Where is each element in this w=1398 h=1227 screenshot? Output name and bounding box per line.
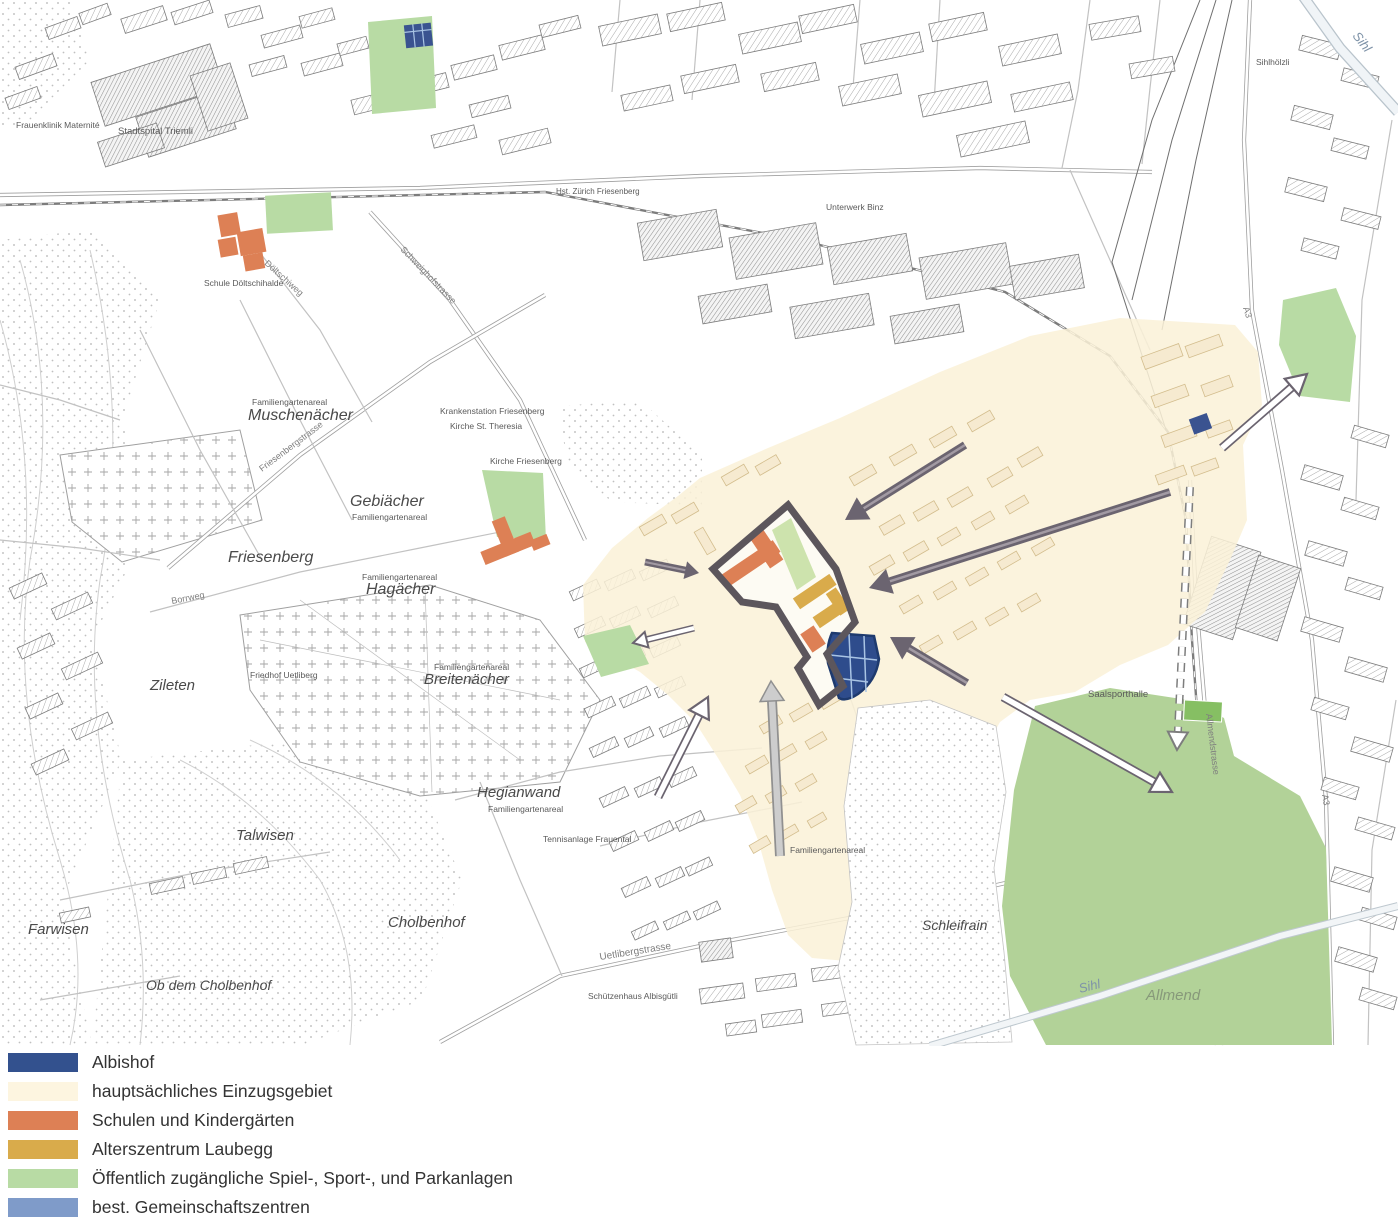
map-label: Zileten: [149, 677, 195, 694]
map-label: Friedhof Uetliberg: [250, 670, 318, 680]
legend-label-einzugsgebiet: hauptsächliches Einzugsgebiet: [92, 1081, 332, 1102]
map-label: Ob dem Cholbenhof: [146, 977, 273, 993]
city-map: MuschenächerGebiächerFriesenbergHagächer…: [0, 0, 1398, 1046]
map-label: Schleifrain: [922, 917, 988, 933]
legend: Albishof hauptsächliches Einzugsgebiet S…: [8, 1048, 708, 1222]
map-label: Hegianwand: [477, 784, 561, 801]
legend-swatch-einzugsgebiet: [8, 1082, 78, 1101]
legend-label-alterszentrum: Alterszentrum Laubegg: [92, 1139, 273, 1160]
map-label: Krankenstation Friesenberg: [440, 406, 545, 416]
map-label: Friesenberg: [228, 549, 313, 566]
map-label: Kirche St. Theresia: [450, 421, 522, 431]
map-label: Familiengartenareal: [434, 662, 509, 672]
legend-row-alterszentrum: Alterszentrum Laubegg: [8, 1135, 708, 1164]
map-label: Familiengartenareal: [488, 804, 563, 814]
map-label: Saalsporthalle: [1088, 689, 1148, 700]
map-label: Tennisanlage Frauental: [543, 834, 631, 844]
map-label: Muschenächer: [248, 407, 354, 424]
map-label: Farwisen: [28, 921, 89, 938]
map-label: Allmend: [1145, 987, 1201, 1004]
legend-row-gemeinschaftszentren: best. Gemeinschaftszentren: [8, 1193, 708, 1222]
map-label: Kirche Friesenberg: [490, 456, 562, 466]
legend-row-schulen: Schulen und Kindergärten: [8, 1106, 708, 1135]
map-label: Unterwerk Binz: [826, 202, 884, 212]
legend-row-einzugsgebiet: hauptsächliches Einzugsgebiet: [8, 1077, 708, 1106]
legend-label-albishof: Albishof: [92, 1052, 154, 1073]
legend-label-schulen: Schulen und Kindergärten: [92, 1110, 294, 1131]
map-label: Sihlhölzli: [1256, 57, 1290, 67]
legend-label-gemeinschaftszentren: best. Gemeinschaftszentren: [92, 1197, 310, 1218]
legend-swatch-alterszentrum: [8, 1140, 78, 1159]
legend-row-albishof: Albishof: [8, 1048, 708, 1077]
map-label: Stadtspital Triemli: [118, 126, 193, 137]
map-label: Familiengartenareal: [790, 845, 865, 855]
map-label: Gebiächer: [350, 493, 424, 510]
legend-label-parkanlagen: Öffentlich zugängliche Spiel-, Sport-, u…: [92, 1168, 513, 1189]
building-block: [699, 938, 733, 962]
map-canvas: MuschenächerGebiächerFriesenbergHagächer…: [0, 0, 1398, 1046]
map-label: Familiengartenareal: [362, 572, 437, 582]
legend-swatch-albishof: [8, 1053, 78, 1072]
map-label: Cholbenhof: [388, 914, 467, 931]
legend-row-parkanlagen: Öffentlich zugängliche Spiel-, Sport-, u…: [8, 1164, 708, 1193]
map-label: Hagächer: [366, 581, 436, 598]
legend-swatch-gemeinschaftszentren: [8, 1198, 78, 1217]
legend-swatch-parkanlagen: [8, 1169, 78, 1188]
map-label: Hst. Zürich Friesenberg: [556, 187, 640, 196]
map-label: Schule Döltschihalde: [204, 278, 284, 288]
map-label: A3: [1320, 794, 1332, 807]
map-label: Talwisen: [236, 827, 294, 844]
schleifrain-slope: [838, 700, 1012, 1045]
map-label: Schützenhaus Albisgütli: [588, 991, 678, 1001]
map-label: Familiengartenareal: [352, 512, 427, 522]
map-label: Familiengartenareal: [252, 397, 327, 407]
legend-swatch-schulen: [8, 1111, 78, 1130]
map-label: Frauenklinik Maternité: [16, 120, 100, 130]
map-label: Breitenächer: [424, 671, 510, 688]
